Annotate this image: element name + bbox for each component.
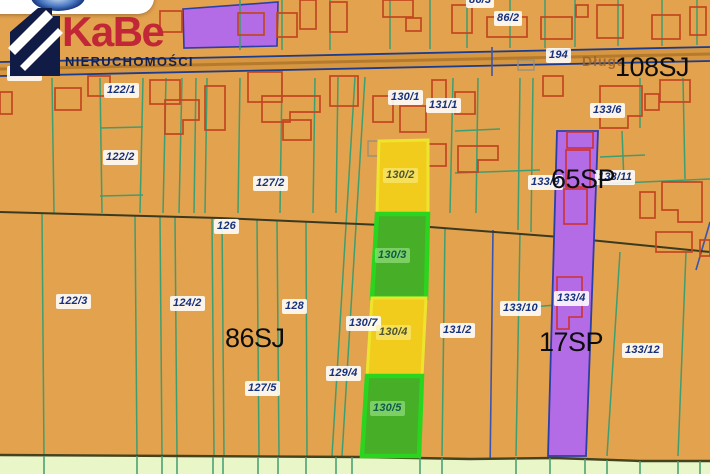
kabe-house-icon [6, 6, 64, 78]
highlight-parcel-130-2[interactable] [377, 140, 428, 214]
kabe-subtitle-text: NIERUCHOMOŚCI [65, 55, 194, 68]
highlight-parcel-130-4[interactable] [367, 298, 426, 376]
kabe-brand-text: KaBe [62, 11, 163, 53]
street-name-label: Długa [582, 53, 626, 69]
highlight-parcel-130-5[interactable] [362, 376, 422, 456]
highlight-parcel-130-3[interactable] [372, 214, 428, 298]
kabe-logo: KaBe NIERUCHOMOŚCI [0, 0, 210, 92]
map-viewport[interactable]: Długa 121/1122/186/386/2194130/1131/1133… [0, 0, 710, 474]
